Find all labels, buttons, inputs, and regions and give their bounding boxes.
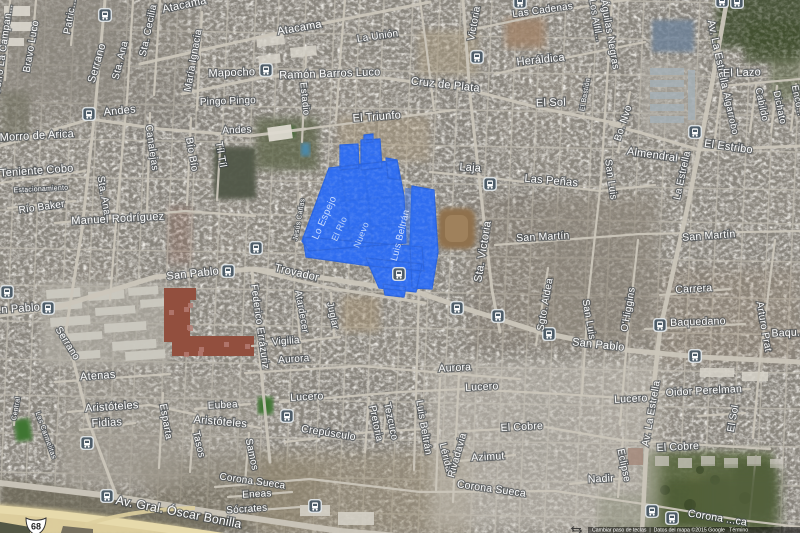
svg-text:Andes: Andes (222, 124, 252, 136)
svg-text:Pingo Pingo: Pingo Pingo (200, 95, 257, 108)
svg-text:El Sol: El Sol (536, 96, 566, 109)
svg-text:Baqu...: Baqu... (771, 326, 800, 339)
svg-text:Laja: Laja (459, 161, 482, 175)
svg-text:Aurora: Aurora (438, 361, 471, 375)
svg-text:Aurora: Aurora (278, 353, 310, 366)
svg-text:Mapocho: Mapocho (208, 66, 255, 80)
svg-text:Carrera: Carrera (675, 282, 713, 296)
svg-text:Lucero: Lucero (614, 392, 648, 406)
svg-text:Nadir: Nadir (588, 472, 615, 485)
svg-text:68: 68 (31, 522, 41, 532)
svg-text:Eubea: Eubea (208, 399, 239, 412)
svg-text:Eneas: Eneas (242, 488, 272, 501)
svg-text:Atenas: Atenas (80, 369, 116, 383)
svg-text:Fidias: Fidias (91, 416, 122, 430)
svg-text:Lucero: Lucero (465, 380, 499, 394)
svg-text:Cambiar paso de teclas | Dat: Cambiar paso de teclas | Datos del mapa … (592, 527, 748, 533)
svg-text:Vigilia: Vigilia (272, 335, 301, 348)
svg-text:Baquedano: Baquedano (670, 315, 726, 329)
svg-text:Lucero: Lucero (290, 390, 324, 404)
svg-text:El Cobre: El Cobre (500, 420, 543, 434)
svg-text:El Lazo: El Lazo (723, 66, 761, 79)
svg-text:El Cobre: El Cobre (656, 440, 699, 454)
svg-text:Azimut: Azimut (471, 450, 505, 464)
